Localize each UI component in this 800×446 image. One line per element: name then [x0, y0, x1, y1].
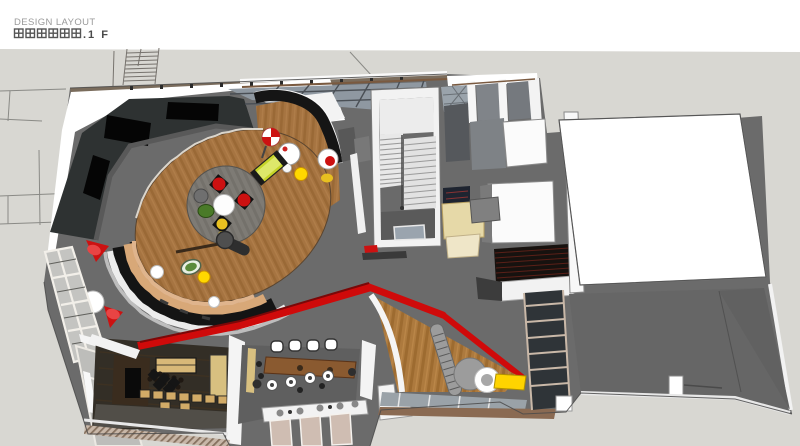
- svg-text:DESIGN LAYOUT: DESIGN LAYOUT: [14, 17, 96, 28]
- svg-text:.1 F: .1 F: [83, 29, 110, 41]
